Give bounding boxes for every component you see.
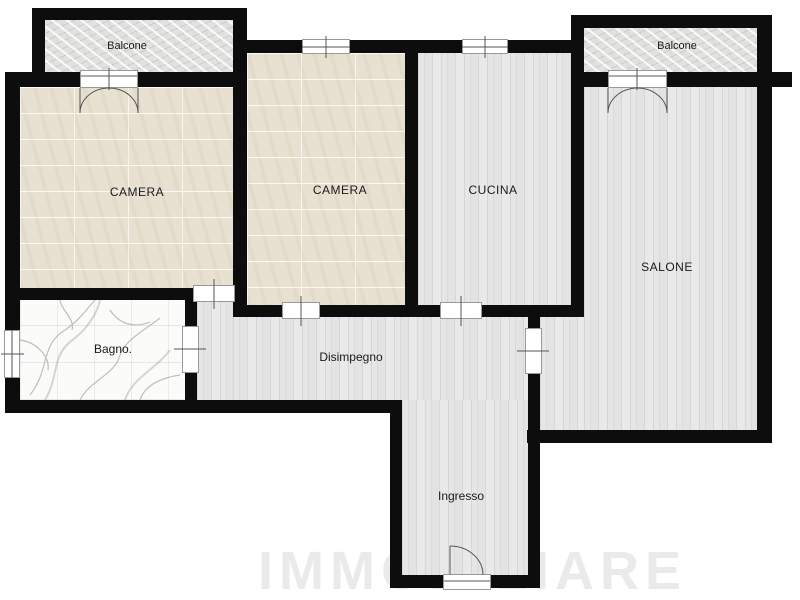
window-camera-center: [302, 39, 350, 54]
wall-segment: [5, 376, 20, 413]
balcony-door-left-frame: [80, 70, 138, 88]
label-disimpegno: Disimpegno: [319, 350, 382, 364]
wall-segment: [32, 8, 246, 20]
wall-segment: [757, 15, 772, 443]
label-salone: SALONE: [641, 260, 693, 274]
window-bagno: [4, 330, 20, 378]
balcony-door-right-frame: [608, 70, 667, 88]
door-camera-left: [193, 285, 235, 302]
door-salone: [525, 328, 542, 374]
wall-segment: [320, 305, 440, 317]
door-camera-center: [282, 302, 320, 319]
label-ingresso: Ingresso: [438, 489, 484, 503]
room-floor-ingresso: [402, 400, 528, 575]
entrance-door-threshold: [443, 574, 491, 590]
wall-segment: [185, 372, 197, 413]
wall-segment: [527, 430, 772, 443]
label-balcone-left: Balcone: [107, 40, 147, 52]
wall-segment: [5, 288, 193, 300]
wall-segment: [32, 8, 45, 73]
wall-segment: [138, 72, 247, 87]
window-cucina: [462, 39, 508, 54]
floor-plan: IMMOBILIARE: [0, 0, 800, 600]
room-floor-disimpegno-strip: [197, 300, 233, 400]
label-bagno: Bagno.: [94, 342, 132, 356]
wall-segment: [5, 400, 402, 413]
wall-segment: [405, 40, 418, 317]
wall-segment: [667, 72, 792, 87]
label-balcone-right: Balcone: [657, 40, 697, 52]
label-camera-left: CAMERA: [110, 185, 164, 199]
wall-segment: [571, 15, 584, 317]
door-bagno: [182, 326, 199, 373]
wall-segment: [390, 400, 402, 588]
label-cucina: CUCINA: [468, 183, 517, 197]
label-camera-center: CAMERA: [313, 183, 367, 197]
room-floor-salone-extension: [540, 317, 584, 432]
wall-segment: [5, 72, 20, 300]
wall-segment: [233, 8, 247, 317]
door-cucina: [440, 302, 482, 319]
wall-segment: [528, 372, 540, 588]
wall-segment: [572, 15, 772, 28]
room-floor-cucina: [418, 53, 571, 305]
wall-segment: [5, 300, 20, 332]
room-floor-camera-center: [247, 53, 405, 305]
